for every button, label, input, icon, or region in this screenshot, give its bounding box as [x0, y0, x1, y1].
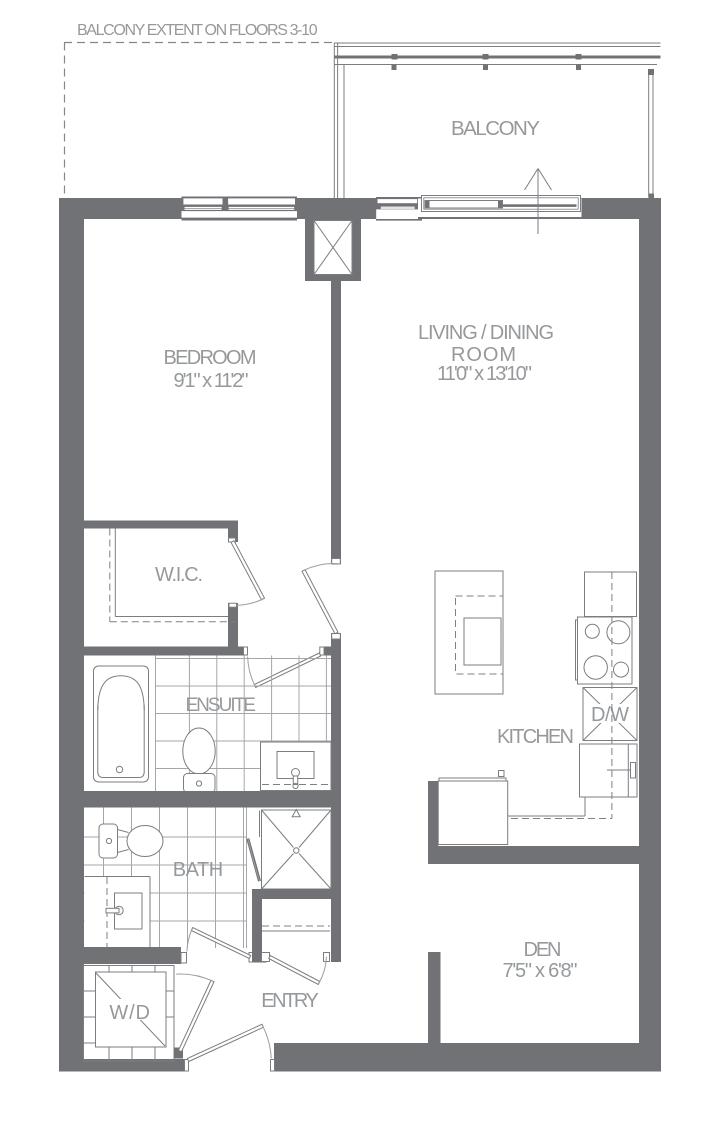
svg-text:BALCONY: BALCONY [451, 117, 540, 140]
svg-text:DEN: DEN [524, 939, 562, 961]
svg-text:KITCHEN: KITCHEN [497, 726, 574, 748]
svg-text:BEDROOM: BEDROOM [164, 347, 257, 369]
svg-text:W/D: W/D [109, 1002, 150, 1024]
svg-text:BALCONY EXTENT ON FLOORS 3-10: BALCONY EXTENT ON FLOORS 3-10 [77, 22, 318, 39]
svg-text:W.I.C.: W.I.C. [155, 564, 203, 586]
svg-text:ENSUITE: ENSUITE [185, 695, 256, 716]
svg-text:ENTRY: ENTRY [261, 990, 319, 1012]
svg-text:9'1" x 11'2": 9'1" x 11'2" [174, 370, 249, 392]
svg-text:BATH: BATH [173, 859, 224, 881]
svg-text:D/W: D/W [591, 704, 629, 726]
svg-text:LIVING / DINING: LIVING / DINING [418, 322, 554, 344]
svg-text:7'5" x 6'8": 7'5" x 6'8" [503, 960, 578, 982]
svg-text:11'0" x 13'10": 11'0" x 13'10" [437, 363, 532, 385]
